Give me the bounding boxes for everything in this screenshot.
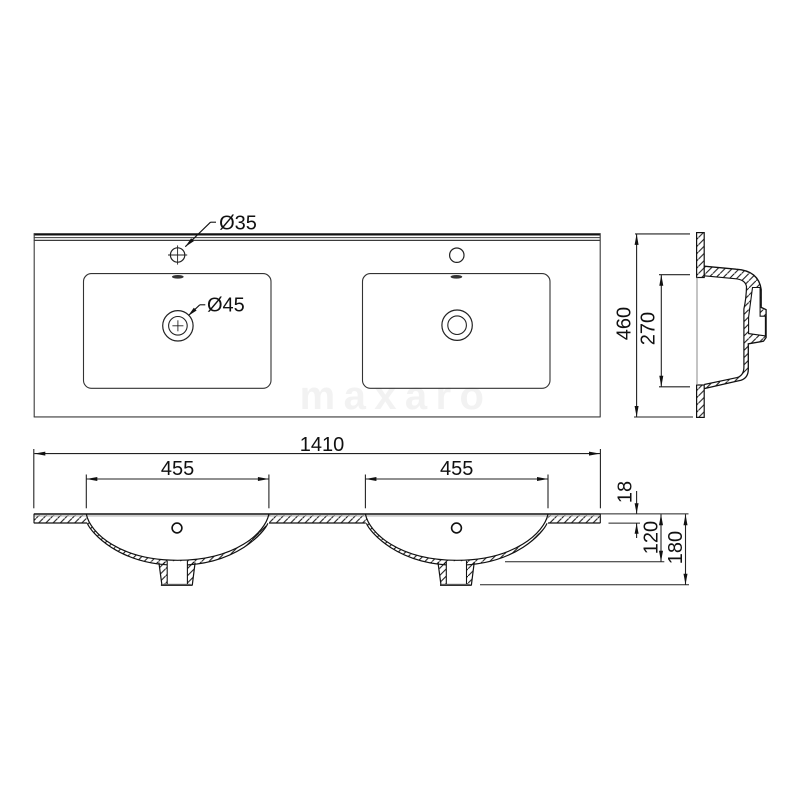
svg-text:455: 455 <box>161 458 194 480</box>
svg-text:270: 270 <box>638 312 660 345</box>
svg-text:120: 120 <box>641 521 663 554</box>
svg-text:455: 455 <box>440 458 473 480</box>
svg-text:1410: 1410 <box>300 434 345 456</box>
svg-text:460: 460 <box>614 307 636 340</box>
svg-text:180: 180 <box>665 531 687 564</box>
svg-text:Ø35: Ø35 <box>219 213 257 235</box>
svg-text:Ø45: Ø45 <box>207 295 245 317</box>
svg-text:maxaro: maxaro <box>300 374 493 418</box>
svg-text:18: 18 <box>615 481 637 503</box>
